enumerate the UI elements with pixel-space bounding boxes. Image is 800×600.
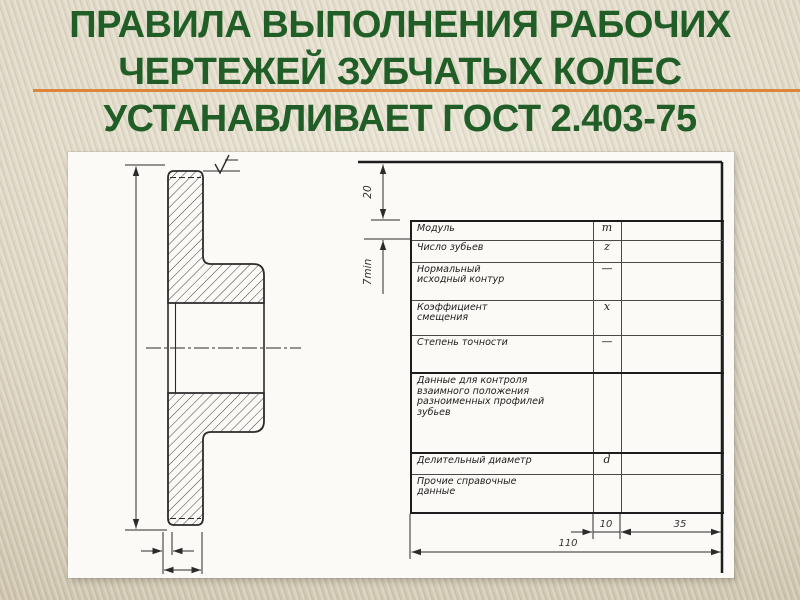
param-value-cell — [621, 373, 723, 453]
title-line-1: ПРАВИЛА ВЫПОЛНЕНИЯ РАБОЧИХ — [0, 2, 800, 49]
accent-rule — [33, 89, 800, 92]
param-name-cell: Прочие справочные данные — [411, 474, 593, 513]
param-value-cell — [621, 335, 723, 373]
dim-35-label: 35 — [674, 519, 687, 530]
param-symbol-cell: x — [593, 300, 621, 335]
param-name-cell: Число зубьев — [411, 240, 593, 262]
param-value-cell — [621, 474, 723, 513]
param-row: Степень точности — — [411, 335, 723, 373]
param-name-cell: Данные для контроля взаимного положения … — [411, 373, 593, 453]
param-row: Данные для контроля взаимного положения … — [411, 373, 723, 453]
param-name-cell: Степень точности — [411, 335, 593, 373]
dim-20-label: 20 — [362, 185, 374, 199]
slide-title: ПРАВИЛА ВЫПОЛНЕНИЯ РАБОЧИХ ЧЕРТЕЖЕЙ ЗУБЧ… — [0, 2, 800, 143]
param-symbol-cell: d — [593, 453, 621, 474]
param-value-cell — [621, 300, 723, 335]
title-line-3: УСТАНАВЛИВАЕТ ГОСТ 2.403-75 — [0, 96, 800, 143]
param-value-cell — [621, 221, 723, 240]
param-name-cell: Модуль — [411, 221, 593, 240]
surface-finish-icon — [203, 155, 240, 173]
slide-background: ПРАВИЛА ВЫПОЛНЕНИЯ РАБОЧИХ ЧЕРТЕЖЕЙ ЗУБЧ… — [0, 0, 800, 600]
param-symbol-cell: — — [593, 335, 621, 373]
param-symbol-cell — [593, 373, 621, 453]
param-row: Нормальный исходный контур — — [411, 262, 723, 300]
gear-upper-half — [168, 171, 264, 303]
param-name-cell: Коэффициент смещения — [411, 300, 593, 335]
param-value-cell — [621, 262, 723, 300]
param-row: Коэффициент смещения x — [411, 300, 723, 335]
dim-10-label: 10 — [600, 519, 613, 530]
param-value-cell — [621, 453, 723, 474]
param-value-cell — [621, 240, 723, 262]
param-name-cell: Нормальный исходный контур — [411, 262, 593, 300]
gear-lower-half — [168, 393, 264, 525]
param-symbol-cell: m — [593, 221, 621, 240]
param-name-cell: Делительный диаметр — [411, 453, 593, 474]
param-row: Прочие справочные данные — [411, 474, 723, 513]
rim-width-dimensions — [141, 532, 202, 574]
dim-110-label: 110 — [558, 538, 577, 549]
param-symbol-cell: — — [593, 262, 621, 300]
param-row: Число зубьев z — [411, 240, 723, 262]
figure-panel: 20 7min 10 35 110 Модуль m — [68, 152, 734, 578]
param-row: Модуль m — [411, 221, 723, 240]
param-symbol-cell: z — [593, 240, 621, 262]
param-table: Модуль m Число зубьев z Нормальный исход… — [410, 220, 724, 514]
dim-7min-label: 7min — [362, 259, 374, 285]
param-symbol-cell — [593, 474, 621, 513]
param-row: Делительный диаметр d — [411, 453, 723, 474]
